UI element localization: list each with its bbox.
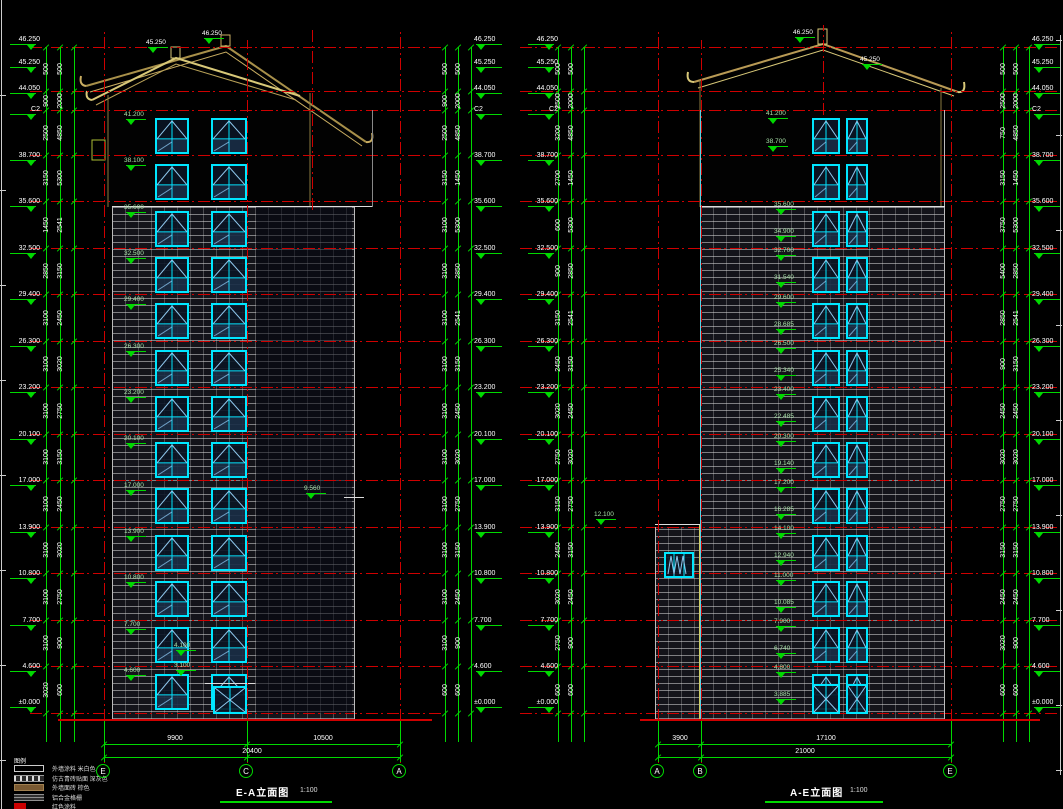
dim-value: 2450 bbox=[1002, 397, 1030, 425]
ruler-tick bbox=[0, 665, 6, 666]
elevation-value: 26.300 bbox=[474, 338, 506, 345]
elevation-value: 23.200 bbox=[124, 389, 150, 396]
elevation-flag-triangle bbox=[777, 376, 785, 381]
elevation-flag-triangle bbox=[27, 626, 35, 631]
elevation-flag-triangle bbox=[1035, 440, 1043, 445]
dim-value: 9900 bbox=[161, 724, 189, 752]
elevation-value: 25.340 bbox=[774, 367, 800, 374]
elevation-flag-triangle bbox=[477, 45, 485, 50]
elevation-flag-triangle bbox=[777, 515, 785, 520]
window bbox=[846, 164, 868, 200]
elevation-flag-triangle bbox=[27, 486, 35, 491]
floor-grid-line bbox=[30, 91, 443, 92]
dim-value: 2000 bbox=[1002, 87, 1030, 115]
dim-value: 20400 bbox=[238, 737, 266, 765]
elevation-flag-triangle bbox=[545, 68, 553, 73]
column-grid-line bbox=[312, 30, 313, 210]
elevation-value: 17.000 bbox=[474, 477, 506, 484]
elevation-drawing-sheet: E-A立面图 1:100 A-E立面图 1:100 图例 外墙涂料 米白色仿古青… bbox=[0, 0, 1063, 809]
elevation-flag-triangle bbox=[545, 45, 553, 50]
elevation-flag-triangle bbox=[149, 48, 157, 53]
ground-line bbox=[640, 719, 1040, 721]
elevation-flag-triangle bbox=[1035, 579, 1043, 584]
elevation-value: C2 bbox=[1032, 106, 1063, 113]
window bbox=[812, 535, 840, 571]
window bbox=[846, 535, 868, 571]
ruler-tick bbox=[1056, 515, 1062, 516]
elevation-flag-triangle bbox=[1035, 254, 1043, 259]
dim-value: 500 bbox=[557, 55, 585, 83]
elevation-flag-triangle bbox=[127, 398, 135, 403]
dim-value: 3150 bbox=[1002, 536, 1030, 564]
window bbox=[812, 118, 840, 154]
elevation-value: 44.050 bbox=[8, 85, 40, 92]
elevation-flag-triangle bbox=[477, 708, 485, 713]
elevation-flag-triangle bbox=[863, 65, 871, 70]
dim-value: 2450 bbox=[444, 583, 472, 611]
dim-value: 2450 bbox=[557, 583, 585, 611]
elevation-value: 20.100 bbox=[8, 431, 40, 438]
elevation-flag-triangle bbox=[177, 671, 185, 676]
elevation-flag-triangle bbox=[27, 393, 35, 398]
ruler-tick bbox=[0, 570, 6, 571]
elevation-value: 35.600 bbox=[124, 204, 150, 211]
elevation-value: 10.085 bbox=[774, 599, 800, 606]
elevation-value: 23.200 bbox=[526, 384, 558, 391]
elevation-value: 35.600 bbox=[1032, 198, 1063, 205]
elevation-value: 23.200 bbox=[8, 384, 40, 391]
elevation-flag-triangle bbox=[1035, 45, 1043, 50]
ruler-tick bbox=[0, 285, 6, 286]
elevation-flag-triangle bbox=[777, 469, 785, 474]
elevation-value: 6.740 bbox=[774, 645, 800, 652]
elevation-flag-triangle bbox=[27, 440, 35, 445]
entrance-door bbox=[812, 684, 840, 714]
elevation-value: 10.800 bbox=[1032, 570, 1063, 577]
dim-value: 500 bbox=[444, 55, 472, 83]
elevation-value: C2 bbox=[474, 106, 506, 113]
elevation-value: 4.100 bbox=[174, 642, 200, 649]
ruler-tick bbox=[1056, 40, 1062, 41]
dim-value: 2000 bbox=[557, 87, 585, 115]
elevation-flag-triangle bbox=[777, 673, 785, 678]
elevation-value: 16.285 bbox=[774, 506, 800, 513]
window bbox=[812, 488, 840, 524]
elevation-flag-triangle bbox=[545, 708, 553, 713]
elevation-flag-triangle bbox=[545, 347, 553, 352]
elevation-value: 29.400 bbox=[474, 291, 506, 298]
elevation-value: 3.885 bbox=[774, 691, 800, 698]
elevation-value: 4.600 bbox=[526, 663, 558, 670]
elevation-value: ±0.000 bbox=[526, 699, 558, 706]
ruler-tick bbox=[0, 190, 6, 191]
elevation-value: C2 bbox=[526, 106, 558, 113]
elevation-value: 14.100 bbox=[774, 525, 800, 532]
dim-value: 5300 bbox=[46, 164, 74, 192]
elevation-value: 35.600 bbox=[774, 201, 800, 208]
elevation-value: 44.050 bbox=[1032, 85, 1063, 92]
elevation-value: ±0.000 bbox=[474, 699, 506, 706]
left-sheet-border bbox=[1, 0, 2, 809]
elevation-value: 46.250 bbox=[202, 30, 228, 37]
dim-value: 600 bbox=[444, 676, 472, 704]
elevation-flag-triangle bbox=[777, 700, 785, 705]
elevation-value: 38.100 bbox=[124, 157, 150, 164]
floor-grid-line bbox=[30, 341, 443, 342]
window bbox=[812, 581, 840, 617]
elevation-flag-triangle bbox=[477, 440, 485, 445]
elevation-flag-triangle bbox=[27, 115, 35, 120]
wall-edge-line bbox=[699, 524, 700, 719]
window bbox=[211, 442, 247, 478]
elevation-flag-triangle bbox=[777, 627, 785, 632]
elevation-flag-triangle bbox=[545, 207, 553, 212]
dim-value: 2850 bbox=[557, 257, 585, 285]
elevation-value: 10.800 bbox=[474, 570, 506, 577]
elevation-value: 17.000 bbox=[8, 477, 40, 484]
elevation-value: 7.900 bbox=[774, 618, 800, 625]
dim-value: 2450 bbox=[1002, 583, 1030, 611]
dim-value: 5300 bbox=[557, 211, 585, 239]
dim-value: 3150 bbox=[557, 350, 585, 378]
elevation-flag-triangle bbox=[477, 393, 485, 398]
window bbox=[846, 581, 868, 617]
elevation-flag-triangle bbox=[545, 161, 553, 166]
window bbox=[155, 257, 189, 293]
window bbox=[155, 211, 189, 247]
dim-value: 2450 bbox=[46, 490, 74, 518]
elevation-value: 31.540 bbox=[774, 274, 800, 281]
elevation-value: 29.600 bbox=[774, 294, 800, 301]
elevation-flag-triangle bbox=[545, 579, 553, 584]
column-grid-line bbox=[658, 28, 659, 763]
elevation-value: 38.700 bbox=[474, 152, 506, 159]
elevation-flag-triangle bbox=[477, 579, 485, 584]
legend-label: 外墙面砖 棕色 bbox=[52, 783, 90, 792]
elevation-value: 29.400 bbox=[124, 296, 150, 303]
legend-label: 红色涂料 bbox=[52, 802, 76, 809]
elevation-value: 26.300 bbox=[8, 338, 40, 345]
dim-value: 3020 bbox=[557, 443, 585, 471]
dim-value: 500 bbox=[46, 55, 74, 83]
window bbox=[846, 303, 868, 339]
elevation-value: 13.900 bbox=[1032, 524, 1063, 531]
elevation-flag-triangle bbox=[777, 488, 785, 493]
window bbox=[155, 303, 189, 339]
dim-value: 2000 bbox=[46, 87, 74, 115]
column-grid-line bbox=[400, 28, 401, 763]
floor-grid-line bbox=[30, 110, 443, 111]
right-roof-eave-tip bbox=[688, 72, 694, 82]
elevation-flag-triangle bbox=[777, 561, 785, 566]
elevation-flag-triangle bbox=[777, 330, 785, 335]
elevation-flag-triangle bbox=[27, 94, 35, 99]
elevation-flag-triangle bbox=[127, 583, 135, 588]
floor-grid-line bbox=[30, 155, 443, 156]
elevation-flag-triangle bbox=[1035, 300, 1043, 305]
dim-value: 900 bbox=[1002, 629, 1030, 657]
elevation-flag-triangle bbox=[545, 440, 553, 445]
elevation-flag-triangle bbox=[477, 115, 485, 120]
detail-line bbox=[344, 497, 364, 498]
elevation-value: 4.600 bbox=[124, 667, 150, 674]
elevation-value: 35.600 bbox=[526, 198, 558, 205]
elevation-value: 10.800 bbox=[124, 574, 150, 581]
dim-value: 2750 bbox=[444, 490, 472, 518]
floor-grid-line bbox=[520, 713, 1058, 714]
ruler-tick bbox=[1056, 705, 1062, 706]
dim-value: 3150 bbox=[444, 536, 472, 564]
elevation-value: 32.500 bbox=[124, 250, 150, 257]
elevation-value: 44.050 bbox=[526, 85, 558, 92]
dim-value: 3150 bbox=[46, 257, 74, 285]
elevation-flag-triangle bbox=[769, 147, 777, 152]
window bbox=[211, 211, 247, 247]
dim-value: 3150 bbox=[557, 536, 585, 564]
legend-swatch-red bbox=[14, 803, 26, 809]
elevation-flag-triangle bbox=[205, 39, 213, 44]
elevation-flag-triangle bbox=[127, 352, 135, 357]
dim-value: 500 bbox=[1002, 55, 1030, 83]
elevation-value: 17.200 bbox=[774, 479, 800, 486]
floor-grid-line bbox=[30, 527, 443, 528]
legend-swatch-tile bbox=[14, 784, 44, 791]
elevation-flag-triangle bbox=[1035, 347, 1043, 352]
elevation-value: 29.400 bbox=[8, 291, 40, 298]
elevation-flag-triangle bbox=[477, 533, 485, 538]
grid-bubble: C bbox=[239, 764, 253, 778]
window bbox=[812, 350, 840, 386]
elevation-flag-triangle bbox=[1035, 533, 1043, 538]
wall-edge-line bbox=[655, 527, 656, 719]
ruler-tick bbox=[1056, 325, 1062, 326]
elevation-flag-triangle bbox=[477, 672, 485, 677]
elevation-value: 45.250 bbox=[1032, 59, 1063, 66]
window bbox=[211, 257, 247, 293]
dim-value: 3020 bbox=[1002, 443, 1030, 471]
elevation-flag-triangle bbox=[27, 207, 35, 212]
grid-bubble: E bbox=[96, 764, 110, 778]
dim-value: 900 bbox=[557, 629, 585, 657]
ruler-tick bbox=[1056, 770, 1062, 771]
elevation-flag-triangle bbox=[477, 207, 485, 212]
right-view-scale: 1:100 bbox=[850, 787, 868, 794]
elevation-flag-triangle bbox=[127, 537, 135, 542]
window bbox=[812, 627, 840, 663]
dim-value: 2450 bbox=[46, 304, 74, 332]
elevation-value: 26.300 bbox=[526, 338, 558, 345]
left-view-title: E-A立面图 bbox=[236, 784, 289, 799]
elevation-value: 4.600 bbox=[8, 663, 40, 670]
elevation-value: 32.700 bbox=[774, 247, 800, 254]
elevation-value: 46.250 bbox=[474, 36, 506, 43]
elevation-value: 29.400 bbox=[1032, 291, 1063, 298]
dim-value: 2750 bbox=[46, 397, 74, 425]
window bbox=[155, 164, 189, 200]
elevation-flag-triangle bbox=[127, 166, 135, 171]
ruler-tick bbox=[1056, 420, 1062, 421]
window bbox=[155, 581, 189, 617]
elevation-flag-triangle bbox=[597, 520, 605, 525]
ruler-tick bbox=[1056, 610, 1062, 611]
elevation-flag-triangle bbox=[477, 68, 485, 73]
dim-value: 2541 bbox=[557, 304, 585, 332]
elevation-value: 46.250 bbox=[8, 36, 40, 43]
elevation-flag-triangle bbox=[1035, 626, 1043, 631]
elevation-flag-triangle bbox=[477, 347, 485, 352]
elevation-flag-triangle bbox=[1035, 115, 1043, 120]
elevation-flag-triangle bbox=[1035, 486, 1043, 491]
window bbox=[846, 396, 868, 432]
elevation-flag-triangle bbox=[777, 581, 785, 586]
window bbox=[155, 396, 189, 432]
elevation-value: 7.700 bbox=[474, 617, 506, 624]
window bbox=[211, 164, 247, 200]
entrance-door bbox=[846, 684, 868, 714]
column-grid-line bbox=[823, 25, 824, 115]
dim-value: 2541 bbox=[46, 211, 74, 239]
detail-line bbox=[700, 206, 945, 207]
elevation-value: 35.600 bbox=[8, 198, 40, 205]
floor-grid-line bbox=[30, 248, 443, 249]
material-legend: 图例 外墙涂料 米白色仿古青砖贴面 深灰色外墙面砖 棕色铝合金格栅红色涂料 bbox=[12, 756, 132, 808]
detail-line bbox=[655, 524, 700, 525]
window bbox=[155, 488, 189, 524]
elevation-value: 45.250 bbox=[146, 39, 172, 46]
legend-swatch-metal bbox=[14, 794, 44, 801]
elevation-value: 17.000 bbox=[124, 482, 150, 489]
elevation-value: 20.100 bbox=[526, 431, 558, 438]
floor-grid-line bbox=[30, 434, 443, 435]
dim-chain-line bbox=[584, 47, 585, 742]
left-view-title-underline bbox=[220, 801, 332, 803]
dim-value: 2450 bbox=[444, 397, 472, 425]
dim-value: 4850 bbox=[1002, 119, 1030, 147]
window bbox=[846, 350, 868, 386]
elevation-flag-triangle bbox=[777, 237, 785, 242]
dim-value: 1450 bbox=[1002, 164, 1030, 192]
elevation-flag-triangle bbox=[177, 651, 185, 656]
elevation-value: 41.200 bbox=[766, 110, 792, 117]
elevation-value: 12.940 bbox=[774, 552, 800, 559]
elevation-value: 34.900 bbox=[774, 228, 800, 235]
elevation-value: 4.600 bbox=[474, 663, 506, 670]
elevation-value: 41.200 bbox=[124, 111, 150, 118]
elevation-flag-triangle bbox=[545, 254, 553, 259]
elevation-value: 32.500 bbox=[526, 245, 558, 252]
floor-grid-line bbox=[520, 47, 1058, 48]
dim-value: 600 bbox=[557, 676, 585, 704]
window bbox=[846, 442, 868, 478]
window bbox=[211, 488, 247, 524]
ground-line bbox=[58, 719, 432, 721]
floor-grid-line bbox=[30, 201, 443, 202]
window bbox=[155, 118, 189, 154]
window bbox=[155, 535, 189, 571]
elevation-flag-triangle bbox=[27, 254, 35, 259]
elevation-flag-triangle bbox=[27, 579, 35, 584]
ruler-tick bbox=[0, 95, 6, 96]
elevation-flag-triangle bbox=[127, 259, 135, 264]
wall-edge-line bbox=[112, 207, 113, 719]
elevation-flag-triangle bbox=[545, 626, 553, 631]
elevation-value: 28.685 bbox=[774, 321, 800, 328]
elevation-flag-triangle bbox=[777, 349, 785, 354]
elevation-flag-triangle bbox=[127, 676, 135, 681]
grid-bubble: A bbox=[392, 764, 406, 778]
elevation-value: 26.500 bbox=[774, 340, 800, 347]
elevation-flag-triangle bbox=[777, 422, 785, 427]
dim-value: 21000 bbox=[791, 737, 819, 765]
elevation-value: 7.700 bbox=[526, 617, 558, 624]
dim-value: 900 bbox=[444, 629, 472, 657]
elevation-value: 13.900 bbox=[474, 524, 506, 531]
dim-value: 2000 bbox=[444, 87, 472, 115]
ruler-tick bbox=[0, 475, 6, 476]
dim-value: 600 bbox=[1002, 676, 1030, 704]
window bbox=[812, 442, 840, 478]
elevation-value: 44.050 bbox=[474, 85, 506, 92]
elevation-value: 4.600 bbox=[1032, 663, 1063, 670]
ruler-tick bbox=[1056, 230, 1062, 231]
legend-header: 图例 bbox=[14, 756, 26, 765]
window bbox=[211, 581, 247, 617]
dim-value: 10500 bbox=[309, 724, 337, 752]
elevation-flag-triangle bbox=[545, 533, 553, 538]
floor-grid-line bbox=[520, 91, 1058, 92]
floor-grid-line bbox=[30, 47, 443, 48]
elevation-flag-triangle bbox=[127, 213, 135, 218]
elevation-value: 38.700 bbox=[1032, 152, 1063, 159]
elevation-flag-triangle bbox=[1035, 161, 1043, 166]
dim-value: 1450 bbox=[557, 164, 585, 192]
window bbox=[812, 396, 840, 432]
grid-bubble: A bbox=[650, 764, 664, 778]
elevation-flag-triangle bbox=[27, 300, 35, 305]
window bbox=[155, 350, 189, 386]
right-view-title: A-E立面图 bbox=[790, 784, 843, 799]
elevation-value: 23.200 bbox=[474, 384, 506, 391]
elevation-value: 38.700 bbox=[766, 138, 792, 145]
floor-grid-line bbox=[30, 480, 443, 481]
grid-bubble: E bbox=[943, 764, 957, 778]
dim-value: 4850 bbox=[46, 119, 74, 147]
floor-grid-line bbox=[520, 155, 1058, 156]
elevation-value: 11.000 bbox=[774, 572, 800, 579]
dim-value: 5300 bbox=[444, 211, 472, 239]
elevation-value: 38.700 bbox=[526, 152, 558, 159]
elevation-value: 35.600 bbox=[474, 198, 506, 205]
elevation-flag-triangle bbox=[545, 300, 553, 305]
wall-edge-line bbox=[372, 110, 373, 207]
elevation-flag-triangle bbox=[27, 68, 35, 73]
column-grid-line bbox=[951, 28, 952, 763]
window bbox=[211, 303, 247, 339]
elevation-value: 9.560 bbox=[304, 485, 330, 492]
column-grid-line bbox=[701, 40, 702, 763]
elevation-value: 45.250 bbox=[8, 59, 40, 66]
elevation-flag-triangle bbox=[1035, 94, 1043, 99]
dim-value: 4850 bbox=[557, 119, 585, 147]
legend-swatch-brick bbox=[14, 775, 44, 782]
dim-value: 3020 bbox=[444, 443, 472, 471]
window bbox=[846, 118, 868, 154]
elevation-value: 12.100 bbox=[594, 511, 620, 518]
column-grid-line bbox=[104, 28, 105, 763]
elevation-flag-triangle bbox=[307, 494, 315, 499]
elevation-value: 29.400 bbox=[526, 291, 558, 298]
elevation-flag-triangle bbox=[545, 486, 553, 491]
